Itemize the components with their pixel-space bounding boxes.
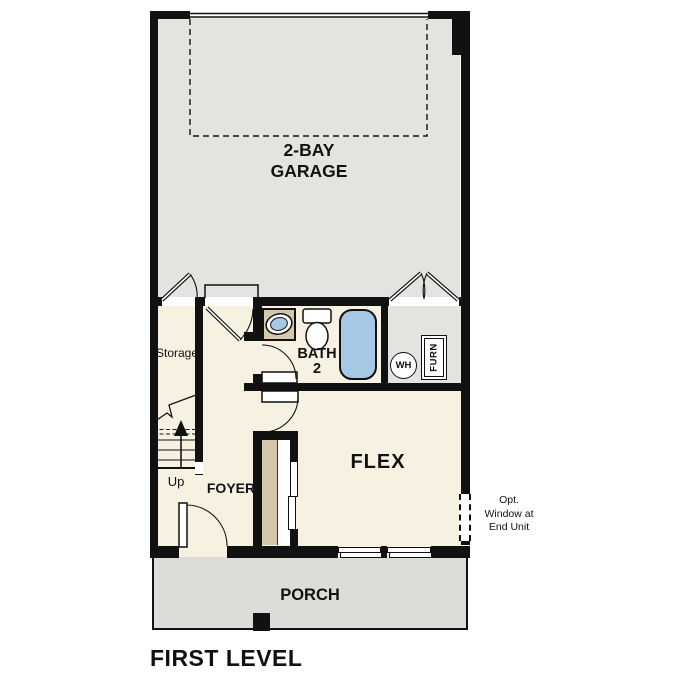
flex-window-2-lower xyxy=(389,552,432,558)
flex-window-1-lower xyxy=(340,552,382,558)
page-title: FIRST LEVEL xyxy=(150,645,370,672)
water-heater-label: WH xyxy=(396,360,412,371)
optional-window xyxy=(459,494,471,541)
opt-window-note: Opt. Window at End Unit xyxy=(476,494,542,535)
furnace: FURN xyxy=(421,335,447,380)
porch-post xyxy=(253,613,270,631)
wall-bottom-seg3 xyxy=(431,546,470,558)
furnace-label: FURN xyxy=(429,343,440,371)
wall-garage-seg1 xyxy=(150,297,162,306)
garage-door xyxy=(190,14,428,18)
porch-label: PORCH xyxy=(152,586,468,605)
furnace-inner: FURN xyxy=(424,338,444,377)
wall-bath-west xyxy=(253,306,262,341)
foyer-label: FOYER xyxy=(200,480,262,496)
wall-top-left xyxy=(150,11,190,19)
wall-bath-stub xyxy=(244,332,253,341)
floorplan-canvas: WH FURN xyxy=(0,0,687,687)
storage-label: Storage xyxy=(150,346,204,360)
bathtub xyxy=(339,309,377,380)
sink-counter xyxy=(262,308,296,341)
flex-label: FLEX xyxy=(318,451,438,474)
wall-right xyxy=(461,11,470,545)
wall-bath-south xyxy=(244,383,462,391)
wall-garage-seg3 xyxy=(253,297,389,306)
closet-chase xyxy=(262,440,278,545)
water-heater: WH xyxy=(390,352,417,379)
wall-left xyxy=(150,11,158,557)
garage-label: 2-BAY GARAGE xyxy=(158,140,460,182)
wall-garage-seg4 xyxy=(459,297,470,306)
closet-slider-panel-1 xyxy=(290,461,298,497)
wall-tub-utility-divider xyxy=(381,306,388,383)
wall-bottom-seg2 xyxy=(227,546,338,558)
wall-stair-divider xyxy=(195,297,203,475)
closet-slider-panel-2 xyxy=(288,496,296,530)
stair-wall-notch xyxy=(195,462,203,474)
bath-label: BATH 2 xyxy=(294,347,340,377)
up-label: Up xyxy=(160,474,192,489)
wall-closet-east-top xyxy=(290,431,298,461)
wall-door-post xyxy=(253,374,262,391)
wall-bottom-seg1 xyxy=(150,546,179,558)
